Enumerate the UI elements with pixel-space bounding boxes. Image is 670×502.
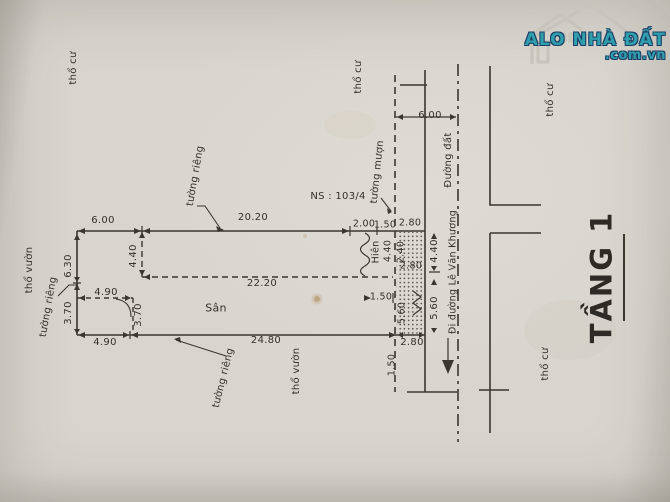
dim-top-b: 1.50 [374,220,396,230]
dim-porch-gap: 1.50 [370,292,392,302]
brand-domain: .com.vn [605,48,666,63]
dim-bottom-main: 24.80 [251,336,281,346]
label-road-direction: Đi đường Lê Văn Khương [448,210,458,334]
label-land-garden-bottom: thổ vườn [292,348,302,395]
gate-swing-arc [116,299,131,317]
dim-inner-width: 22.20 [247,279,277,289]
dim-bottom-left: 4.90 [93,338,116,348]
leader-borrowed-wall [381,198,391,211]
label-land-residential-mid: thổ cư [354,60,364,93]
dim-below-plot: 1.50 [387,354,397,376]
scanned-floor-plan: thổ cư thổ vườn tường riêng 6.30 3.70 4.… [0,0,670,502]
dim-strip-right-lower: 5.60 [430,296,440,319]
dim-strip-right-upper: 4.40 [430,239,440,262]
dim-strip-inner: 5.60 [397,302,407,324]
dim-bottom-strip: 2.80 [400,338,423,348]
notch-dashed-line [77,298,133,335]
right-plot-top [490,66,541,205]
label-land-residential-topleft: thổ cư [69,51,79,84]
dim-top-c: 2.80 [399,218,421,228]
brand-name: ALO NHÀ ĐẤT [525,30,666,50]
dim-road-width: 6.00 [418,111,441,121]
leader-private-wall-bottom [176,340,226,356]
dim-top-a: 2.00 [353,219,375,229]
dim-top-offset: 6.00 [91,216,114,226]
leader-private-wall-left [58,285,78,296]
label-land-residential-right-bottom: thổ cư [541,347,551,380]
label-dirt-road: Đường đất [444,132,454,187]
plan-drawing [0,0,670,502]
dim-inner-depth: 4.40 [129,244,139,267]
label-land-garden-left: thổ vườn [25,247,35,294]
road-direction-arrow [442,360,454,374]
dim-left-upper: 6.30 [64,254,74,277]
brand-watermark: ALO NHÀ ĐẤT .com.vn [524,0,670,66]
label-parcel-note: NS : 103/4 [310,192,365,202]
inner-dashed-line [142,231,393,277]
dim-top-main: 20.20 [238,213,268,223]
dim-notch-height: 3.70 [134,303,144,326]
label-porch: Hiên [371,241,381,264]
label-yard: Sân [205,303,227,314]
leader-private-wall-top [197,206,220,228]
dim-porch-depth: 4.40 [383,240,393,262]
label-land-residential-right-top: thổ cư [546,83,556,116]
dim-strip-width: 2.80 [400,261,422,271]
porch-steps-squiggle [361,233,370,276]
dim-notch-width: 4.90 [94,288,117,298]
dim-left-lower: 3.70 [64,301,74,324]
floor-title: TẦNG 1 [588,211,617,344]
